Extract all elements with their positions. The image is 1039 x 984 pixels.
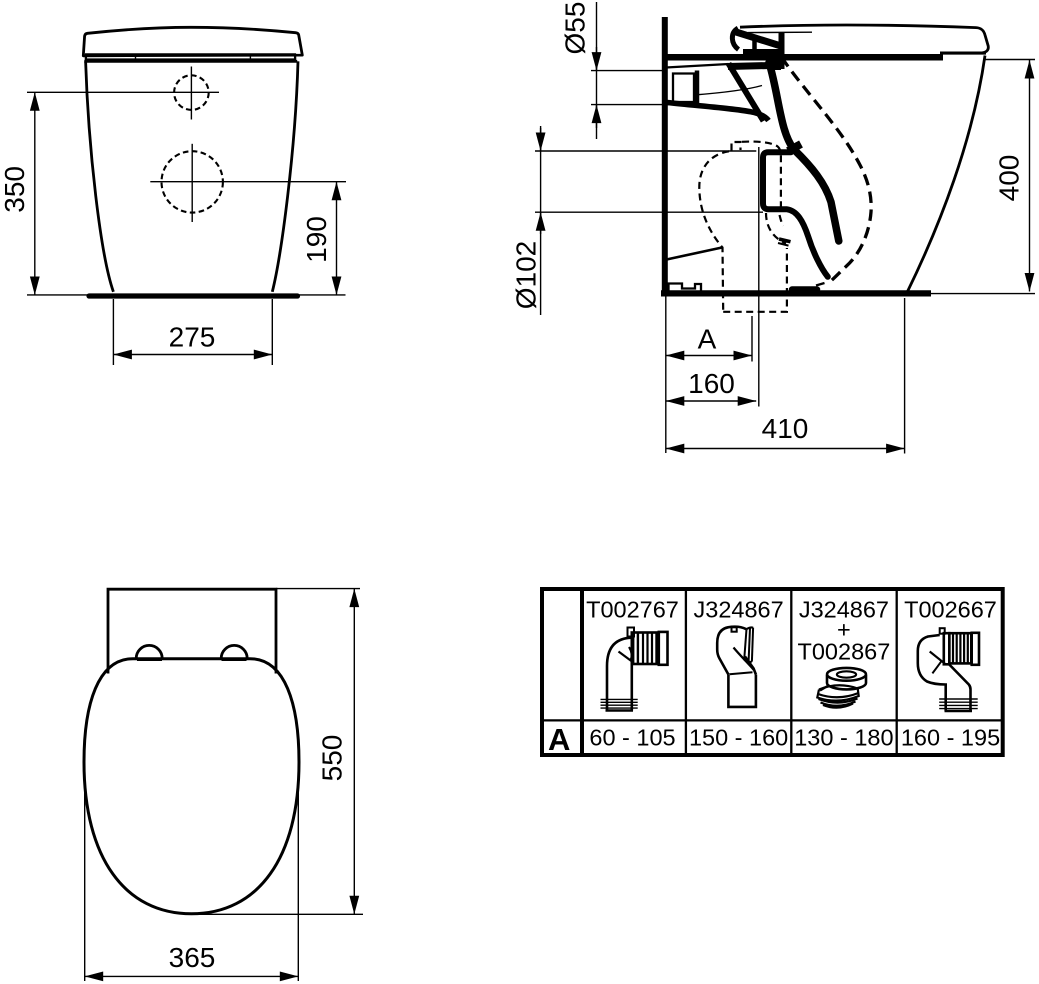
svg-text:T002767: T002767 bbox=[586, 597, 679, 623]
svg-text:130 - 180: 130 - 180 bbox=[794, 725, 893, 751]
svg-text:A: A bbox=[548, 722, 570, 757]
svg-text:Ø102: Ø102 bbox=[511, 241, 542, 310]
svg-text:Ø55: Ø55 bbox=[560, 2, 591, 55]
svg-text:150 - 160: 150 - 160 bbox=[689, 725, 788, 751]
svg-text:160 - 195: 160 - 195 bbox=[901, 725, 1000, 751]
svg-text:365: 365 bbox=[169, 942, 216, 973]
svg-text:J324867: J324867 bbox=[694, 597, 784, 623]
svg-text:275: 275 bbox=[169, 322, 216, 353]
svg-text:60 - 105: 60 - 105 bbox=[589, 725, 675, 751]
svg-text:350: 350 bbox=[0, 166, 30, 213]
svg-text:400: 400 bbox=[994, 155, 1025, 202]
svg-text:A: A bbox=[698, 324, 717, 355]
svg-text:190: 190 bbox=[301, 216, 332, 263]
svg-text:410: 410 bbox=[762, 413, 809, 444]
svg-text:550: 550 bbox=[317, 735, 348, 782]
svg-text:160: 160 bbox=[688, 368, 735, 399]
svg-text:T002867: T002867 bbox=[798, 639, 891, 665]
svg-text:T002667: T002667 bbox=[904, 597, 997, 623]
